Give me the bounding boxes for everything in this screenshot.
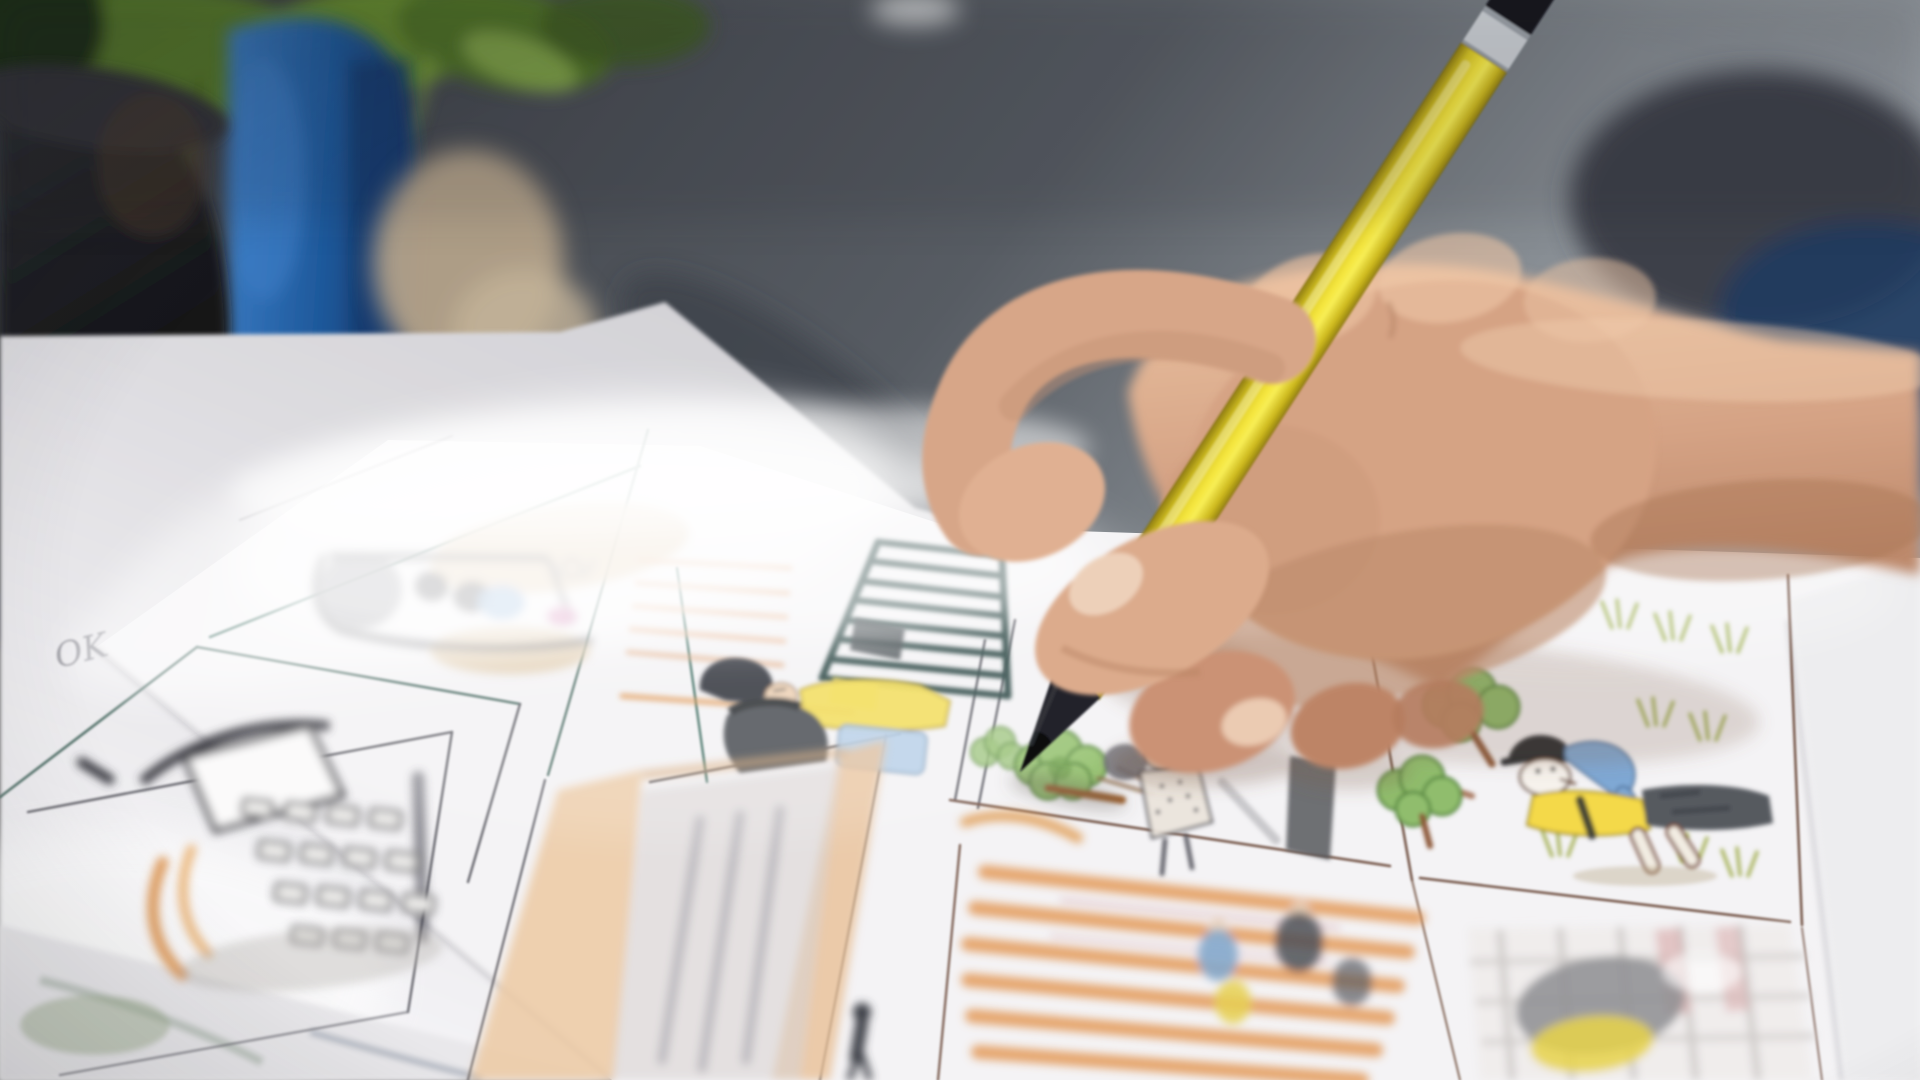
storyboard-photo: OK bbox=[0, 0, 1920, 1080]
top-shade bbox=[0, 0, 1920, 220]
photo-stage: OK bbox=[0, 0, 1920, 1080]
